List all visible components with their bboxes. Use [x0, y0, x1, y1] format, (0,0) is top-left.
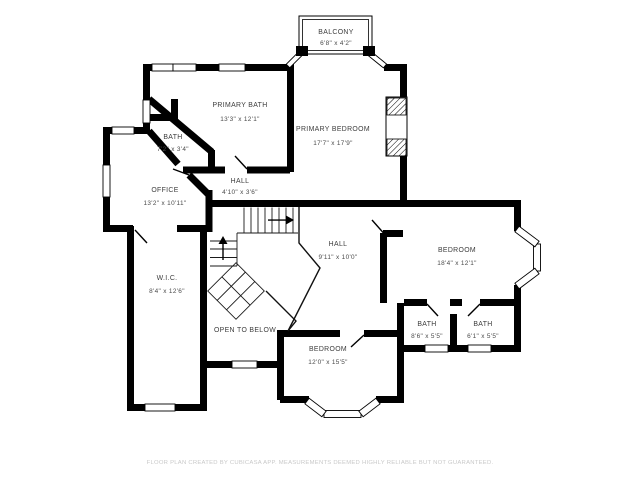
door-primary-bath [235, 156, 247, 169]
wall-center-south [207, 200, 521, 400]
room-label-wic: W.I.C. 8'4" x 12'6" [149, 275, 185, 295]
room-name: BEDROOM [309, 346, 347, 353]
room-dims: 8'6" x 5'5" [411, 333, 443, 340]
door-leaves [135, 156, 480, 347]
balcony-post-left [296, 46, 308, 56]
room-name: HALL [329, 241, 348, 248]
room-name: BALCONY [318, 29, 353, 36]
window-jog [112, 127, 134, 134]
stair-winder [208, 263, 265, 320]
door-office-wic [135, 230, 147, 243]
room-name: W.I.C. [157, 275, 178, 282]
room-name: OFFICE [151, 187, 178, 194]
balcony-post-right [363, 46, 375, 56]
floor-plan-canvas: BALCONY 6'8" x 4'2" PRIMARY BATH 13'3" x… [0, 0, 640, 480]
staircase [208, 208, 298, 320]
room-dims: 8'4" x 12'6" [149, 288, 185, 295]
door-bedroom-right [372, 220, 384, 233]
room-labels: BALCONY 6'8" x 4'2" PRIMARY BATH 13'3" x… [143, 29, 498, 366]
floor-plan-page: BALCONY 6'8" x 4'2" PRIMARY BATH 13'3" x… [0, 0, 640, 480]
room-dims: 4'10" x 3'6" [222, 189, 258, 196]
window-bath-left [425, 345, 448, 352]
room-dims: 9'11" x 10'0" [318, 254, 357, 261]
window-bay-right-low [515, 268, 539, 289]
room-dims: 6'8" x 4'2" [320, 40, 352, 47]
room-dims: 13'3" x 12'1" [220, 116, 260, 123]
window-office-left [103, 165, 110, 197]
room-name: PRIMARY BEDROOM [296, 126, 370, 133]
room-dims: 7'2" x 3'4" [157, 146, 189, 153]
room-dims: 6'1" x 5'5" [467, 333, 499, 340]
room-name: BATH [163, 134, 182, 141]
room-name: HALL [231, 178, 250, 185]
room-label-bath-right: BATH 6'1" x 5'5" [467, 321, 499, 340]
room-label-hall-center: HALL 9'11" x 10'0" [318, 241, 357, 261]
window-wic-bottom [145, 404, 175, 411]
window-left-upper [143, 100, 150, 123]
door-bath-right [468, 304, 480, 316]
room-dims: 17'7" x 17'9" [313, 140, 353, 147]
chimney [386, 97, 407, 156]
window-bath-right [468, 345, 491, 352]
wall-outline-nw [103, 64, 290, 411]
footer-disclaimer: FLOOR PLAN CREATED BY CUBICASA APP. MEAS… [147, 460, 494, 466]
door-bath-left [427, 304, 438, 316]
room-label-hall-upper: HALL 4'10" x 3'6" [222, 178, 258, 196]
window-top-3 [219, 64, 245, 71]
room-label-bath-left: BATH 8'6" x 5'5" [411, 321, 443, 340]
room-name: PRIMARY BATH [212, 102, 267, 109]
room-name: BEDROOM [438, 247, 476, 254]
door-bedroom-bottom [351, 335, 364, 347]
window-bay-bottom-mid [324, 411, 361, 418]
window-bay-bottom-left [305, 398, 326, 417]
window-top-2 [173, 64, 196, 71]
room-label-primary-bath: PRIMARY BATH 13'3" x 12'1" [212, 102, 267, 123]
window-bay-bottom-right [359, 398, 380, 417]
room-label-bedroom-bottom: BEDROOM 12'0" x 15'5" [308, 346, 348, 366]
window-open-below [232, 361, 257, 368]
room-label-primary-bedroom: PRIMARY BEDROOM 17'7" x 17'9" [296, 126, 370, 147]
room-dims: 12'0" x 15'5" [308, 359, 348, 366]
room-dims: 13'2" x 10'11" [143, 200, 186, 207]
room-name: OPEN TO BELOW [214, 327, 276, 334]
window-bay-right-mid [534, 244, 541, 271]
room-name: BATH [417, 321, 436, 328]
room-dims: 18'4" x 12'1" [437, 260, 477, 267]
room-name: BATH [473, 321, 492, 328]
room-label-open-to-below: OPEN TO BELOW [214, 327, 276, 334]
window-bay-right-top [515, 226, 539, 247]
room-label-bedroom-right: BEDROOM 18'4" x 12'1" [437, 247, 477, 267]
stair-direction-arrows [219, 216, 295, 261]
room-label-office: OFFICE 13'2" x 10'11" [143, 187, 186, 207]
window-top-1 [152, 64, 173, 71]
